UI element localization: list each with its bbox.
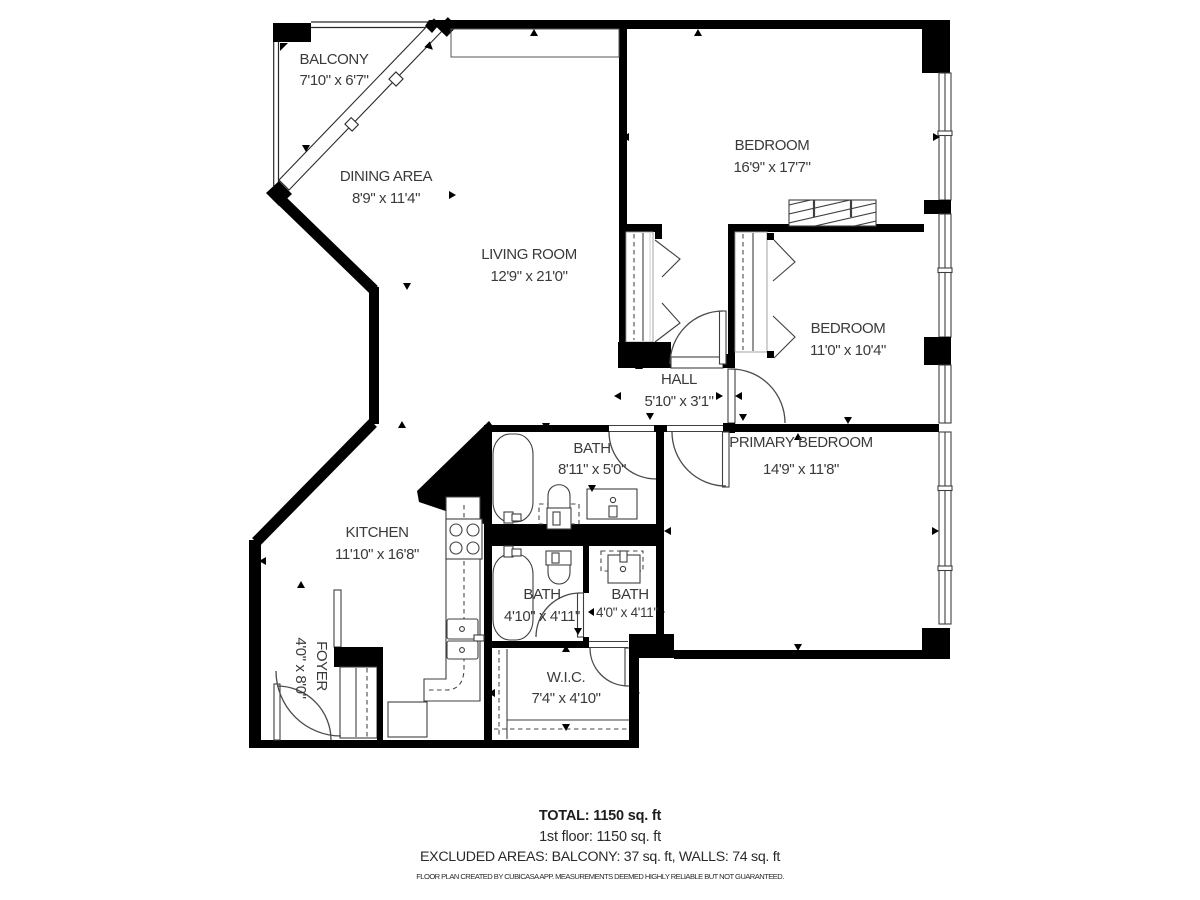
svg-text:BEDROOM: BEDROOM xyxy=(811,320,886,337)
svg-text:W.I.C.: W.I.C. xyxy=(547,669,585,686)
svg-text:16'9" x 17'7": 16'9" x 17'7" xyxy=(733,159,810,176)
svg-text:1st floor: 1150 sq. ft: 1st floor: 1150 sq. ft xyxy=(539,829,661,845)
svg-text:EXCLUDED AREAS: BALCONY: 37 sq: EXCLUDED AREAS: BALCONY: 37 sq. ft, WALL… xyxy=(420,849,780,865)
svg-text:7'10" x 6'7": 7'10" x 6'7" xyxy=(299,72,368,89)
svg-text:HALL: HALL xyxy=(661,371,697,388)
svg-text:5'10" x 3'1": 5'10" x 3'1" xyxy=(644,393,713,410)
svg-text:12'9" x 21'0": 12'9" x 21'0" xyxy=(490,268,567,285)
svg-text:BEDROOM: BEDROOM xyxy=(735,137,810,154)
svg-text:4'10" x 4'11": 4'10" x 4'11" xyxy=(504,608,580,625)
svg-text:FOYER: FOYER xyxy=(313,641,330,691)
svg-text:BALCONY: BALCONY xyxy=(300,51,369,68)
svg-text:TOTAL: 1150 sq. ft: TOTAL: 1150 sq. ft xyxy=(539,808,662,824)
svg-text:4'0" x 4'11": 4'0" x 4'11" xyxy=(596,605,658,620)
svg-text:PRIMARY BEDROOM: PRIMARY BEDROOM xyxy=(729,434,872,451)
svg-text:7'4" x 4'10": 7'4" x 4'10" xyxy=(531,690,600,707)
svg-text:FLOOR PLAN CREATED BY CUBICASA: FLOOR PLAN CREATED BY CUBICASA APP. MEAS… xyxy=(416,872,784,881)
svg-text:8'9" x 11'4": 8'9" x 11'4" xyxy=(352,190,420,207)
svg-text:4'0" x 8'0": 4'0" x 8'0" xyxy=(292,637,309,698)
svg-text:LIVING ROOM: LIVING ROOM xyxy=(481,246,577,263)
svg-text:BATH: BATH xyxy=(523,586,560,603)
svg-text:14'9" x 11'8": 14'9" x 11'8" xyxy=(763,461,839,478)
svg-text:BATH: BATH xyxy=(611,586,648,603)
svg-text:KITCHEN: KITCHEN xyxy=(345,524,408,541)
svg-text:8'11" x 5'0": 8'11" x 5'0" xyxy=(558,461,626,478)
svg-text:DINING AREA: DINING AREA xyxy=(340,168,433,185)
svg-text:BATH: BATH xyxy=(573,440,610,457)
svg-text:11'0" x 10'4": 11'0" x 10'4" xyxy=(810,342,886,359)
svg-text:11'10" x 16'8": 11'10" x 16'8" xyxy=(335,546,419,563)
